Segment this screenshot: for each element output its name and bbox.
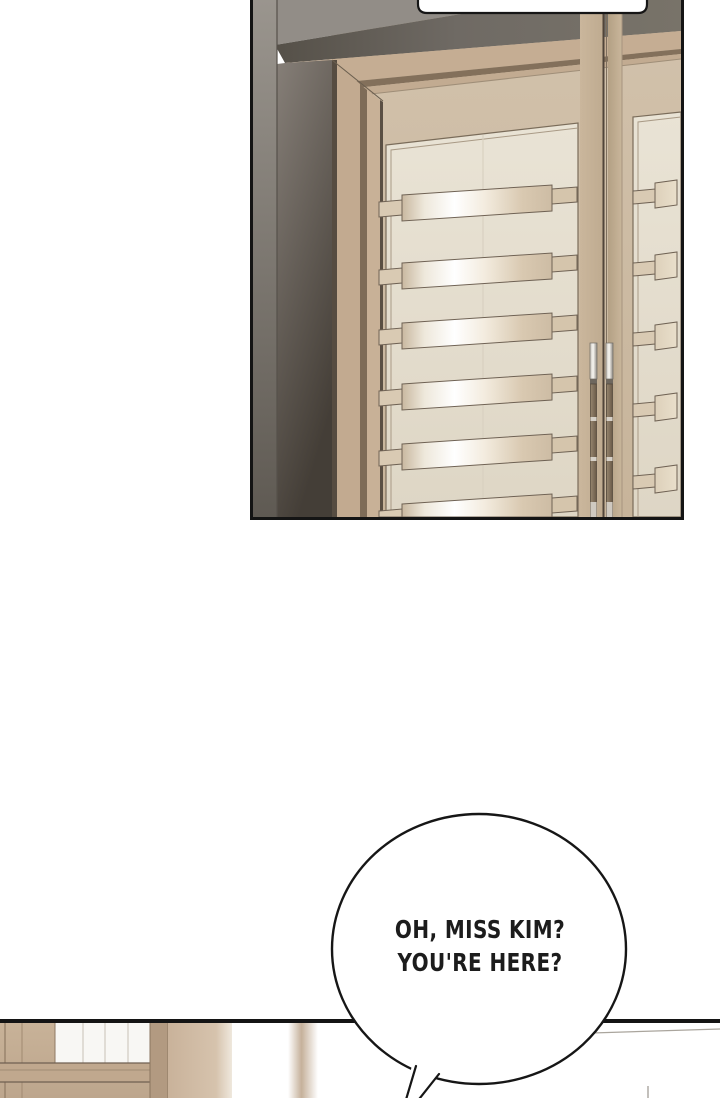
wooden-cabinet — [0, 1023, 232, 1098]
door-split — [580, 0, 622, 517]
hallway-scene — [0, 1023, 720, 1098]
side-wall — [253, 0, 332, 517]
left-pull-handle — [590, 343, 597, 517]
comic-page: OH, MISS KIM? YOU'RE HERE? — [0, 0, 720, 1098]
hallway-panel — [0, 1019, 720, 1098]
door-scene — [253, 0, 681, 517]
right-pull-handle — [606, 343, 613, 517]
door-frame-jamb — [332, 60, 383, 517]
blurred-doorframe — [288, 1023, 318, 1098]
speech-line-2: YOU'RE HERE? — [360, 946, 600, 979]
speech-text: OH, MISS KIM? YOU'RE HERE? — [360, 913, 600, 979]
right-door-inset-panel — [633, 112, 681, 517]
speech-line-1: OH, MISS KIM? — [360, 913, 600, 946]
door-panel — [250, 0, 684, 520]
